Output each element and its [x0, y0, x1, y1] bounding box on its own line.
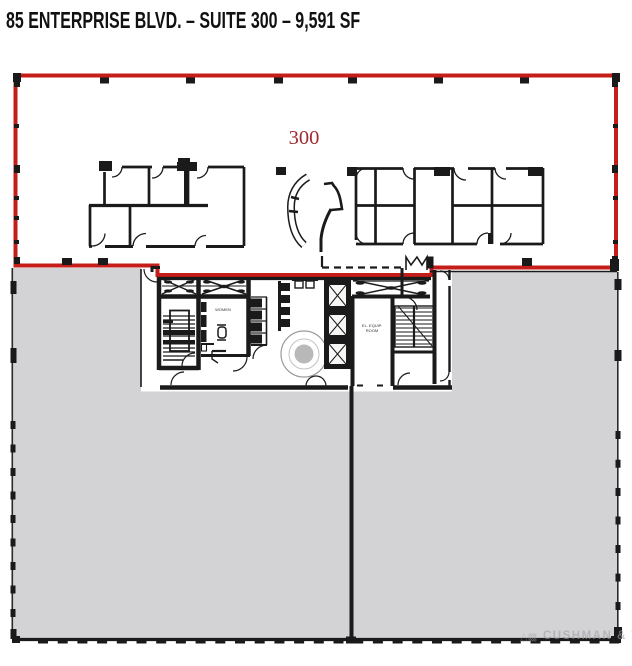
svg-text:WOMEN: WOMEN: [215, 307, 231, 312]
svg-text:ROOM: ROOM: [366, 328, 378, 333]
svg-text:CUSHMAN & W: CUSHMAN & W: [543, 630, 632, 642]
svg-text:300: 300: [289, 127, 320, 149]
svg-text:△▩: △▩: [520, 632, 537, 643]
